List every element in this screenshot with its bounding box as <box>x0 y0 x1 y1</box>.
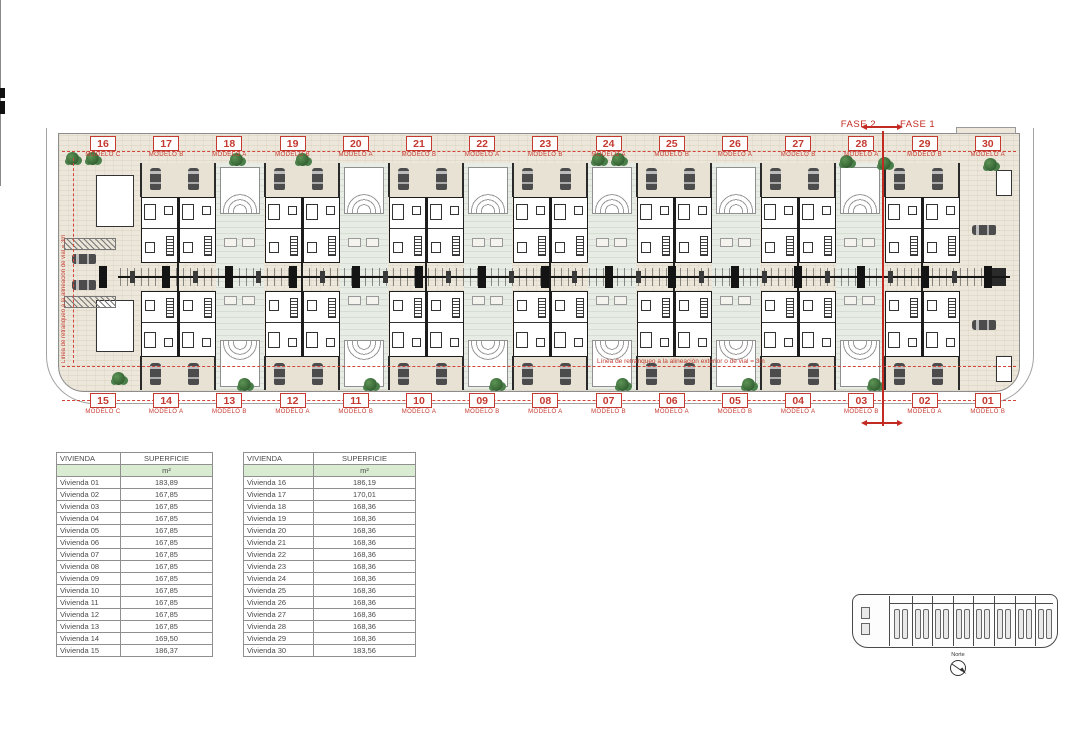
pool <box>220 167 260 214</box>
patio-table <box>738 238 751 247</box>
furniture <box>803 300 813 311</box>
vivienda-cell: Vivienda 14 <box>57 633 121 645</box>
house-plan <box>799 197 836 263</box>
fase-arrow-bottom <box>866 422 898 424</box>
house-plan <box>265 291 302 357</box>
unit-number-top-18: 18 <box>216 136 242 151</box>
furniture <box>765 242 775 253</box>
unit-number-bottom-03: 03 <box>848 393 874 408</box>
key-plan-divider <box>912 596 913 646</box>
furniture <box>288 206 297 215</box>
house-plan <box>427 197 464 263</box>
table-row: Vivienda 21 168,36 <box>244 537 416 549</box>
superficie-cell: 168,36 <box>314 573 416 585</box>
house-plan <box>179 197 216 263</box>
party-wall <box>338 356 340 390</box>
stair-core <box>700 298 708 318</box>
patio-table <box>844 296 857 305</box>
patio-table <box>366 296 379 305</box>
stair-core <box>948 236 956 256</box>
unit-model-bottom-07: MODELO B <box>579 409 639 415</box>
patio-table <box>348 296 361 305</box>
furniture <box>288 338 297 347</box>
party-wall <box>512 163 514 197</box>
furniture <box>268 204 280 220</box>
furniture <box>536 338 545 347</box>
unit-number-top-17: 17 <box>153 136 179 151</box>
unit-model-bottom-14: MODELO A <box>136 409 196 415</box>
furniture <box>784 206 793 215</box>
patio-table <box>224 296 237 305</box>
furniture <box>698 338 707 347</box>
table-row: Vivienda 24 168,36 <box>244 573 416 585</box>
house-plan <box>551 197 588 263</box>
tree-icon <box>878 157 891 170</box>
patio-table <box>472 296 485 305</box>
house-plan <box>427 291 464 357</box>
furniture <box>392 204 404 220</box>
vivienda-cell: Vivienda 16 <box>244 477 314 489</box>
keyplan-pill <box>902 609 908 639</box>
table-row: Vivienda 20 168,36 <box>244 525 416 537</box>
tree-icon <box>868 378 881 391</box>
central-spine-line <box>118 276 1010 278</box>
keyplan-pill <box>964 609 970 639</box>
unit-model-bottom-12: MODELO A <box>263 409 323 415</box>
furniture <box>142 322 177 323</box>
furniture <box>803 242 813 253</box>
furniture <box>183 300 193 311</box>
superficie-cell: 167,85 <box>121 513 213 525</box>
spine-node <box>605 266 613 288</box>
table-row: Vivienda 30 183,56 <box>244 645 416 657</box>
stair-core <box>576 298 584 318</box>
stair-core <box>662 236 670 256</box>
unit-model-bottom-06: MODELO A <box>642 409 702 415</box>
unit-model-bottom-09: MODELO B <box>452 409 512 415</box>
furniture <box>164 206 173 215</box>
car-icon <box>770 168 781 190</box>
vivienda-cell: Vivienda 25 <box>244 585 314 597</box>
party-wall <box>958 356 960 390</box>
fase-divider-line <box>882 131 884 426</box>
unit-number-bottom-01: 01 <box>975 393 1001 408</box>
furniture <box>554 332 566 348</box>
furniture <box>164 338 173 347</box>
spine-node <box>130 271 135 283</box>
spine-node <box>572 271 577 283</box>
furniture <box>390 228 425 229</box>
house-plan <box>513 291 550 357</box>
unit-number-bottom-06: 06 <box>659 393 685 408</box>
furniture <box>266 322 301 323</box>
keyplan-pill <box>984 609 990 639</box>
patio-table <box>844 238 857 247</box>
car-icon <box>398 168 409 190</box>
unit-number-top-19: 19 <box>280 136 306 151</box>
superficie-cell: 168,36 <box>314 597 416 609</box>
key-plan-divider <box>1015 596 1016 646</box>
furniture <box>678 332 690 348</box>
party-wall <box>958 163 960 197</box>
party-wall <box>140 356 142 390</box>
house-plan <box>389 197 426 263</box>
vivienda-cell: Vivienda 05 <box>57 525 121 537</box>
unit-number-bottom-12: 12 <box>280 393 306 408</box>
stair-core <box>290 298 298 318</box>
furniture <box>304 322 339 323</box>
vivienda-cell: Vivienda 27 <box>244 609 314 621</box>
table-row: Vivienda 22 168,36 <box>244 549 416 561</box>
unit-model-bottom-01: MODELO B <box>958 409 1018 415</box>
vivienda-cell: Vivienda 18 <box>244 501 314 513</box>
table-unit-row: m² <box>244 465 416 477</box>
party-wall <box>512 356 514 390</box>
patio-table <box>614 238 627 247</box>
spine-node <box>921 266 929 288</box>
spine-node <box>446 271 451 283</box>
table-row: Vivienda 17 170,01 <box>244 489 416 501</box>
keyplan-pill <box>1026 609 1032 639</box>
vivienda-cell: Vivienda 02 <box>57 489 121 501</box>
furniture <box>306 332 318 348</box>
house-plan <box>179 291 216 357</box>
furniture <box>552 228 587 229</box>
furniture <box>307 242 317 253</box>
table-row: Vivienda 02 167,85 <box>57 489 213 501</box>
furniture <box>450 206 459 215</box>
garage-ramp <box>64 238 116 250</box>
furniture <box>946 338 955 347</box>
keyplan-pill <box>1038 609 1044 639</box>
stair-core <box>948 298 956 318</box>
furniture <box>326 206 335 215</box>
stair-core <box>786 298 794 318</box>
party-wall <box>462 356 464 390</box>
keyplan-pill <box>1018 609 1024 639</box>
furniture <box>946 206 955 215</box>
spine-node <box>99 266 107 288</box>
furniture <box>679 242 689 253</box>
furniture <box>552 322 587 323</box>
patio-table <box>862 238 875 247</box>
furniture <box>536 206 545 215</box>
table-row: Vivienda 01 183,89 <box>57 477 213 489</box>
party-wall <box>214 163 216 197</box>
table-row: Vivienda 23 168,36 <box>244 561 416 573</box>
furniture <box>764 332 776 348</box>
stair-core <box>204 298 212 318</box>
furniture <box>676 228 711 229</box>
furniture <box>641 242 651 253</box>
furniture <box>924 228 959 229</box>
unit-number-bottom-10: 10 <box>406 393 432 408</box>
furniture <box>392 332 404 348</box>
vivienda-cell: Vivienda 26 <box>244 597 314 609</box>
unit-number-bottom-04: 04 <box>785 393 811 408</box>
unit-number-top-20: 20 <box>343 136 369 151</box>
unit-number-bottom-07: 07 <box>596 393 622 408</box>
spine-node <box>857 266 865 288</box>
house-plan <box>265 197 302 263</box>
table-row: Vivienda 06 167,85 <box>57 537 213 549</box>
spine-node <box>984 266 992 288</box>
keyplan-pill <box>915 609 921 639</box>
spine-node <box>289 266 297 288</box>
patio-table <box>472 238 485 247</box>
car-icon <box>72 280 96 290</box>
stair-core <box>910 298 918 318</box>
spine-node <box>162 266 170 288</box>
furniture <box>889 242 899 253</box>
stair-core <box>328 236 336 256</box>
patio-table <box>720 238 733 247</box>
sheet-edge-mark <box>0 101 5 114</box>
unit-model-top-24: MODELO A <box>579 152 639 158</box>
unit-number-top-21: 21 <box>406 136 432 151</box>
furniture <box>431 242 441 253</box>
house-plan <box>96 175 134 227</box>
furniture <box>307 300 317 311</box>
house-plan <box>675 291 712 357</box>
unit-model-top-30: MODELO A <box>958 152 1018 158</box>
table-row: Vivienda 11 167,85 <box>57 597 213 609</box>
party-wall <box>834 163 836 197</box>
vivienda-cell: Vivienda 04 <box>57 513 121 525</box>
furniture <box>889 300 899 311</box>
superficie-cell: 167,85 <box>121 489 213 501</box>
furniture <box>638 228 673 229</box>
vivienda-cell: Vivienda 13 <box>57 621 121 633</box>
fase-arrowhead <box>897 420 903 426</box>
party-wall <box>264 163 266 197</box>
stair-core <box>700 236 708 256</box>
keyplan-pill <box>943 609 949 639</box>
unit-number-top-22: 22 <box>469 136 495 151</box>
table-viviendas-16-30: VIVIENDA SUPERFICIE m² Vivienda 16 186,1… <box>243 452 416 657</box>
key-plan-end-unit <box>861 607 870 619</box>
table-row: Vivienda 15 186,37 <box>57 645 213 657</box>
vivienda-cell: Vivienda 21 <box>244 537 314 549</box>
furniture <box>180 228 215 229</box>
header-vivienda: VIVIENDA <box>57 453 121 465</box>
parapet-outline <box>956 127 1016 134</box>
superficie-cell: 169,50 <box>121 633 213 645</box>
vivienda-cell: Vivienda 23 <box>244 561 314 573</box>
furniture <box>886 228 921 229</box>
superficie-cell: 167,85 <box>121 537 213 549</box>
unit-number-bottom-14: 14 <box>153 393 179 408</box>
unit-model-bottom-15: MODELO C <box>73 409 133 415</box>
table-row: Vivienda 27 168,36 <box>244 609 416 621</box>
furniture <box>802 332 814 348</box>
furniture <box>516 332 528 348</box>
unit-model-top-16: MODELO C <box>73 152 133 158</box>
furniture <box>183 242 193 253</box>
tree-icon <box>490 378 503 391</box>
unit-number-top-27: 27 <box>785 136 811 151</box>
superficie-cell: 186,37 <box>121 645 213 657</box>
party-wall <box>586 163 588 197</box>
furniture <box>926 204 938 220</box>
furniture <box>393 300 403 311</box>
vivienda-cell: Vivienda 19 <box>244 513 314 525</box>
furniture <box>800 322 835 323</box>
stair-core <box>576 236 584 256</box>
stair-core <box>786 236 794 256</box>
stair-core <box>414 298 422 318</box>
stair-core <box>538 298 546 318</box>
party-wall <box>388 163 390 197</box>
vivienda-cell: Vivienda 12 <box>57 609 121 621</box>
furniture <box>269 300 279 311</box>
pool <box>468 340 508 387</box>
unit-number-bottom-09: 09 <box>469 393 495 408</box>
keyplan-pill <box>956 609 962 639</box>
vivienda-cell: Vivienda 20 <box>244 525 314 537</box>
furniture <box>762 322 797 323</box>
furniture <box>412 338 421 347</box>
superficie-cell: 167,85 <box>121 597 213 609</box>
unit-model-top-26: MODELO A <box>705 152 765 158</box>
superficie-cell: 168,36 <box>314 609 416 621</box>
table-row: Vivienda 29 168,36 <box>244 633 416 645</box>
vivienda-cell: Vivienda 22 <box>244 549 314 561</box>
spine-node <box>668 266 676 288</box>
house-plan <box>761 197 798 263</box>
unit-m2: m² <box>314 465 416 477</box>
stair-core <box>166 298 174 318</box>
superficie-cell: 167,85 <box>121 549 213 561</box>
spine-node <box>762 271 767 283</box>
vivienda-cell: Vivienda 24 <box>244 573 314 585</box>
pool <box>592 167 632 214</box>
furniture <box>660 338 669 347</box>
table-row: Vivienda 25 168,36 <box>244 585 416 597</box>
house-plan <box>637 197 674 263</box>
superficie-cell: 168,36 <box>314 585 416 597</box>
table-row: Vivienda 03 167,85 <box>57 501 213 513</box>
table-row: Vivienda 09 167,85 <box>57 573 213 585</box>
unit-model-top-20: MODELO A <box>326 152 386 158</box>
party-wall <box>834 356 836 390</box>
unit-number-bottom-15: 15 <box>90 393 116 408</box>
unit-model-top-22: MODELO A <box>452 152 512 158</box>
pool <box>468 167 508 214</box>
key-plan-divider <box>994 596 995 646</box>
vivienda-cell: Vivienda 06 <box>57 537 121 549</box>
unit-model-top-18: MODELO A <box>199 152 259 158</box>
unit-number-bottom-05: 05 <box>722 393 748 408</box>
table-row: Vivienda 16 186,19 <box>244 477 416 489</box>
stair-core <box>204 236 212 256</box>
patio-table <box>738 296 751 305</box>
key-plan-end-unit <box>861 623 870 635</box>
tree-icon <box>364 378 377 391</box>
table-row: Vivienda 14 169,50 <box>57 633 213 645</box>
tree-icon <box>238 378 251 391</box>
keyplan-pill <box>923 609 929 639</box>
unit-model-bottom-08: MODELO A <box>515 409 575 415</box>
setback-dashed-line-bottom <box>62 366 1016 367</box>
tree-icon <box>984 158 997 171</box>
superficie-cell: 167,85 <box>121 609 213 621</box>
stair-core <box>328 298 336 318</box>
header-vivienda: VIVIENDA <box>244 453 314 465</box>
table-row: Vivienda 12 167,85 <box>57 609 213 621</box>
superficie-cell: 168,36 <box>314 549 416 561</box>
furniture <box>555 300 565 311</box>
furniture <box>800 228 835 229</box>
furniture <box>888 204 900 220</box>
vivienda-cell: Vivienda 07 <box>57 549 121 561</box>
table-row: Vivienda 07 167,85 <box>57 549 213 561</box>
house-plan <box>303 291 340 357</box>
furniture <box>555 242 565 253</box>
keyplan-pill <box>976 609 982 639</box>
patio-table <box>596 296 609 305</box>
house-plan <box>141 291 178 357</box>
superficie-cell: 167,85 <box>121 501 213 513</box>
car-icon <box>684 168 695 190</box>
setback-note-horizontal: Línea de retranqueo a la alineación exte… <box>597 358 765 365</box>
car-icon <box>560 168 571 190</box>
garage-ramp <box>64 296 116 308</box>
furniture <box>430 204 442 220</box>
unit-number-top-16: 16 <box>90 136 116 151</box>
unit-number-bottom-02: 02 <box>912 393 938 408</box>
architectural-site-plan-sheet: 16MODELO C17MODELO B18MODELO A19MODELO B… <box>0 0 1080 750</box>
superficie-cell: 167,85 <box>121 573 213 585</box>
furniture <box>888 332 900 348</box>
furniture <box>202 206 211 215</box>
car-icon <box>972 320 996 330</box>
unit-model-top-29: MODELO B <box>895 152 955 158</box>
vivienda-cell: Vivienda 15 <box>57 645 121 657</box>
unit-number-bottom-08: 08 <box>532 393 558 408</box>
spine-node <box>888 271 893 283</box>
superficie-cell: 168,36 <box>314 513 416 525</box>
furniture <box>180 322 215 323</box>
patio-table <box>720 296 733 305</box>
stair-core <box>452 298 460 318</box>
stair-core <box>824 298 832 318</box>
unit-model-bottom-10: MODELO A <box>389 409 449 415</box>
north-compass-icon <box>947 658 971 682</box>
superficie-cell: 168,36 <box>314 621 416 633</box>
house-plan <box>637 291 674 357</box>
car-icon <box>646 168 657 190</box>
house-plan <box>996 356 1012 382</box>
stair-core <box>910 236 918 256</box>
spine-node <box>193 271 198 283</box>
house-plan <box>885 197 922 263</box>
header-superficie: SUPERFICIE <box>121 453 213 465</box>
car-icon <box>274 168 285 190</box>
furniture <box>182 204 194 220</box>
house-plan <box>923 197 960 263</box>
furniture <box>144 204 156 220</box>
stair-core <box>290 236 298 256</box>
furniture <box>268 332 280 348</box>
patio-table <box>242 296 255 305</box>
superficie-cell: 170,01 <box>314 489 416 501</box>
car-icon <box>312 168 323 190</box>
house-plan <box>389 291 426 357</box>
patio-table <box>366 238 379 247</box>
party-wall <box>636 163 638 197</box>
furniture <box>638 322 673 323</box>
